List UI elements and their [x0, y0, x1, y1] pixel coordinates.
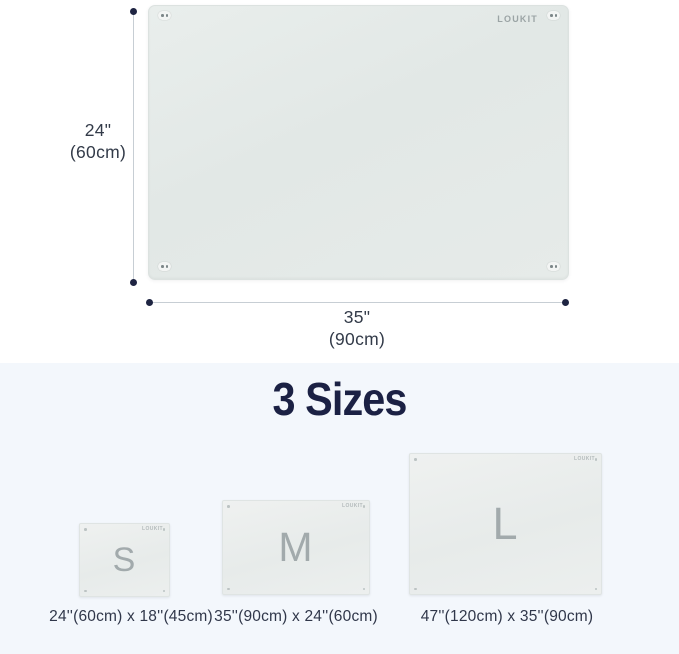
- height-inches: 24": [56, 119, 140, 141]
- mount-dot-icon: [414, 588, 417, 591]
- mount-dot-icon: [227, 505, 230, 508]
- product-size-infographic: LOUKIT 24" (60cm) 35" (90cm) 3 Sizes LOU…: [0, 0, 679, 654]
- size-letter-l: L: [492, 498, 518, 550]
- dimension-endpoint-dot: [146, 299, 153, 306]
- mount-screw-icon: [547, 262, 560, 271]
- mount-dot-icon: [414, 458, 417, 461]
- size-dimensions-medium: 35''(90cm) x 24''(60cm): [214, 608, 378, 626]
- mount-dot-icon: [227, 588, 230, 591]
- size-letter-m: M: [278, 524, 313, 571]
- width-dimension-line: [151, 302, 564, 303]
- size-board-large: LOUKIT L: [409, 453, 602, 595]
- brand-logo-mini: LOUKIT: [342, 504, 363, 509]
- height-cm: (60cm): [56, 141, 140, 163]
- glass-whiteboard-main: LOUKIT: [148, 5, 569, 280]
- sizes-section: 3 Sizes LOUKIT S LOUKIT M LOUKIT L 24: [0, 363, 679, 654]
- size-dimensions-large: 47''(120cm) x 35''(90cm): [421, 608, 594, 626]
- sizes-title: 3 Sizes: [0, 374, 679, 424]
- mount-dot-icon: [84, 528, 87, 531]
- mount-dot-icon: [163, 528, 166, 531]
- mount-dot-icon: [163, 590, 166, 593]
- mount-dot-icon: [363, 588, 366, 591]
- dimension-endpoint-dot: [562, 299, 569, 306]
- brand-logo-mini: LOUKIT: [574, 457, 595, 462]
- mount-dot-icon: [363, 505, 366, 508]
- mount-screw-icon: [158, 11, 171, 20]
- mount-dot-icon: [595, 458, 598, 461]
- width-dimension-label: 35" (90cm): [296, 306, 418, 351]
- size-dimensions-small: 24''(60cm) x 18''(45cm): [49, 608, 213, 626]
- mount-dot-icon: [595, 588, 598, 591]
- dimension-endpoint-dot: [130, 279, 137, 286]
- dimension-endpoint-dot: [130, 8, 137, 15]
- mount-screw-icon: [547, 11, 560, 20]
- size-letter-s: S: [113, 541, 137, 580]
- height-dimension-label: 24" (60cm): [56, 119, 140, 164]
- hero-section: LOUKIT 24" (60cm) 35" (90cm): [0, 0, 679, 363]
- brand-logo: LOUKIT: [497, 14, 538, 24]
- width-inches: 35": [296, 306, 418, 328]
- mount-dot-icon: [84, 590, 87, 593]
- size-board-medium: LOUKIT M: [222, 500, 370, 595]
- mount-screw-icon: [158, 262, 171, 271]
- size-board-small: LOUKIT S: [79, 523, 170, 597]
- width-cm: (90cm): [296, 328, 418, 350]
- brand-logo-mini: LOUKIT: [142, 527, 163, 532]
